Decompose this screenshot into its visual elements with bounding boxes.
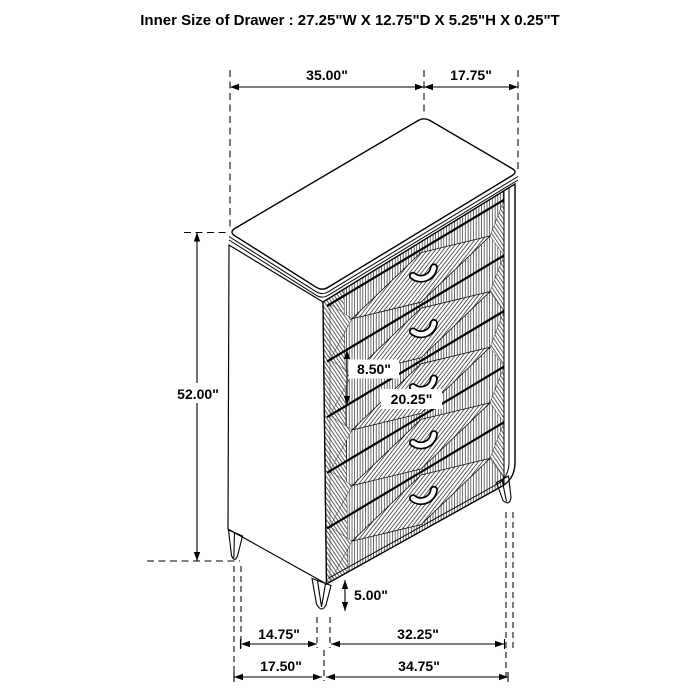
arrowhead	[342, 580, 348, 589]
arrowhead	[509, 84, 518, 90]
dim-drawer-width-label: 20.25"	[391, 391, 433, 407]
diagram-title: Inner Size of Drawer : 27.25"W X 12.75"D…	[140, 12, 559, 29]
dim-leg-height-label: 5.00"	[354, 587, 388, 603]
leg-rear-left-inner-line	[234, 533, 235, 559]
dim-overall-height: 52.00"	[147, 233, 240, 562]
arrowhead	[415, 84, 424, 90]
arrowhead	[313, 674, 322, 680]
arrowhead	[234, 674, 243, 680]
dim-base-depth: 17.50"	[234, 658, 322, 682]
dim-leg-span-side-label: 14.75"	[258, 626, 300, 642]
arrowhead	[194, 233, 200, 242]
arrowhead	[194, 552, 200, 561]
dim-base-depth-label: 17.50"	[260, 658, 302, 674]
dim-leg-height: 5.00"	[342, 580, 394, 611]
arrowhead	[424, 84, 433, 90]
dim-leg-span-front-label: 32.25"	[397, 626, 439, 642]
dimension-diagram-canvas: Inner Size of Drawer : 27.25"W X 12.75"D…	[0, 0, 700, 700]
dim-leg-span-side: 14.75"	[241, 626, 318, 649]
product-dimension-diagram: Inner Size of Drawer : 27.25"W X 12.75"D…	[0, 0, 700, 700]
dim-top-width-label: 35.00"	[306, 67, 348, 83]
dim-base-width-label: 34.75"	[398, 658, 440, 674]
arrowhead	[342, 602, 348, 611]
chest-side-panel	[228, 245, 327, 584]
dim-top-depth-label: 17.75"	[450, 67, 492, 83]
arrowhead	[331, 641, 340, 647]
arrowhead	[495, 641, 504, 647]
dim-leg-span-front: 32.25"	[331, 626, 505, 649]
arrowhead	[326, 674, 335, 680]
dim-base-width: 34.75"	[326, 658, 508, 682]
dim-drawer-width: 20.25"	[381, 389, 442, 409]
arrowhead	[308, 641, 317, 647]
arrowhead	[499, 674, 508, 680]
dim-overall-height-label: 52.00"	[177, 386, 219, 402]
arrowhead	[241, 641, 250, 647]
leg-front-inner-line	[318, 581, 322, 608]
dim-drawer-height-label: 8.50"	[357, 361, 391, 377]
arrowhead	[230, 84, 239, 90]
leg-front-inner-line	[322, 584, 326, 608]
dim-top-depth: 17.75"	[424, 67, 518, 90]
